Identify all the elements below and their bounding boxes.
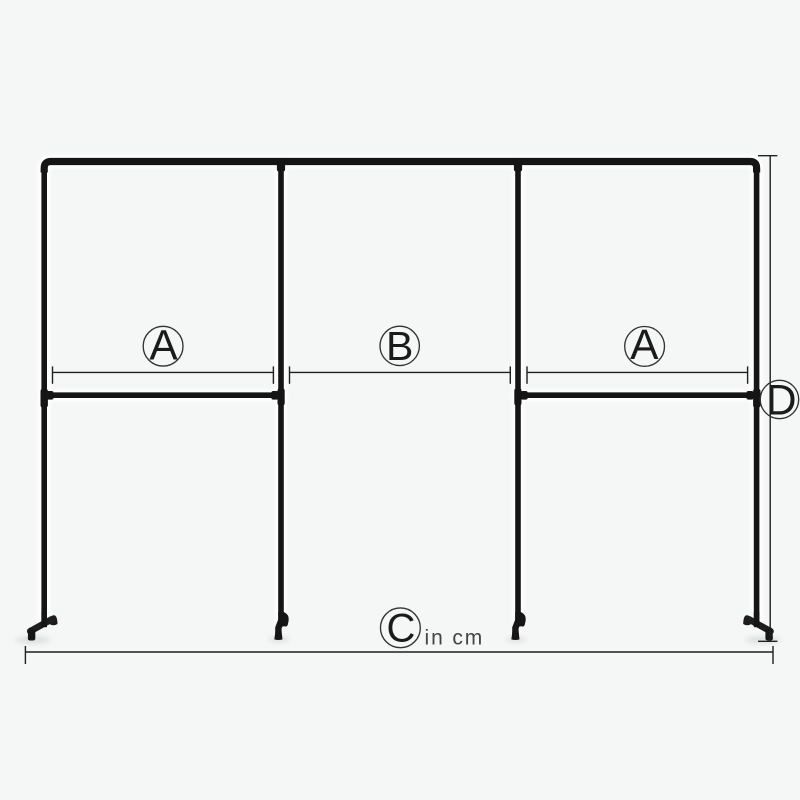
svg-text:C: C xyxy=(387,606,416,650)
svg-text:A: A xyxy=(630,322,659,369)
svg-text:A: A xyxy=(149,322,178,369)
svg-text:in cm: in cm xyxy=(425,627,485,650)
svg-text:D: D xyxy=(766,376,797,423)
svg-text:B: B xyxy=(386,323,413,369)
